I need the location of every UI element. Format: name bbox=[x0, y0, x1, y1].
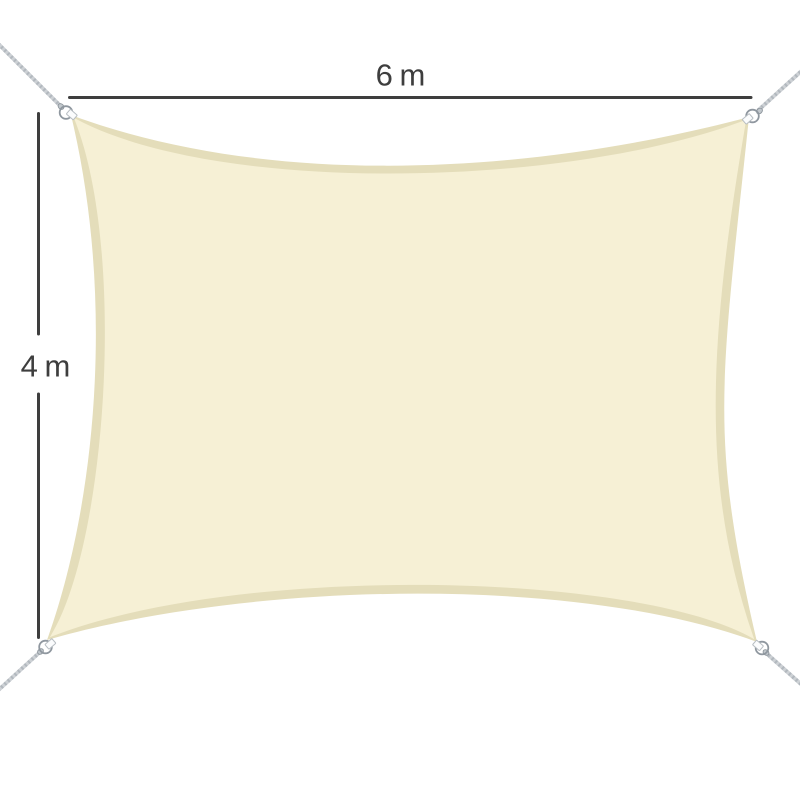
svg-text:6 m: 6 m bbox=[376, 58, 425, 93]
svg-text:4 m: 4 m bbox=[21, 349, 70, 384]
